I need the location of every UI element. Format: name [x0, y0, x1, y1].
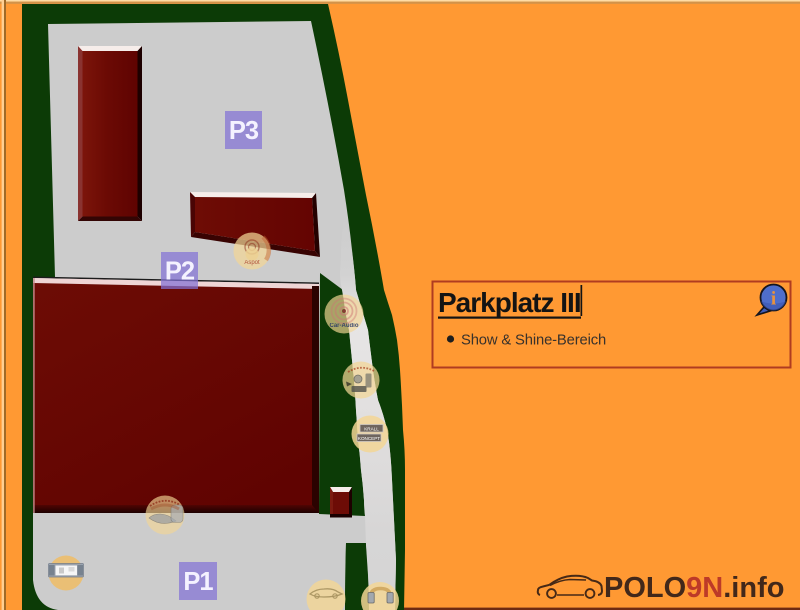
svg-text:KONCEPT: KONCEPT	[358, 436, 380, 441]
svg-text:POLO9N.info: POLO9N.info	[604, 572, 784, 604]
svg-text:Parkplatz III: Parkplatz III	[438, 287, 581, 318]
svg-text:i: i	[771, 289, 776, 310]
svg-text:Show & Shine-Bereich: Show & Shine-Bereich	[461, 333, 606, 349]
svg-text:Car-Audio: Car-Audio	[330, 323, 359, 329]
svg-text:P2: P2	[165, 258, 195, 286]
svg-text:P3: P3	[229, 117, 259, 145]
svg-text:P1: P1	[183, 568, 213, 596]
svg-text:Aspot: Aspot	[244, 260, 260, 266]
svg-text:KRALL: KRALL	[364, 427, 379, 432]
